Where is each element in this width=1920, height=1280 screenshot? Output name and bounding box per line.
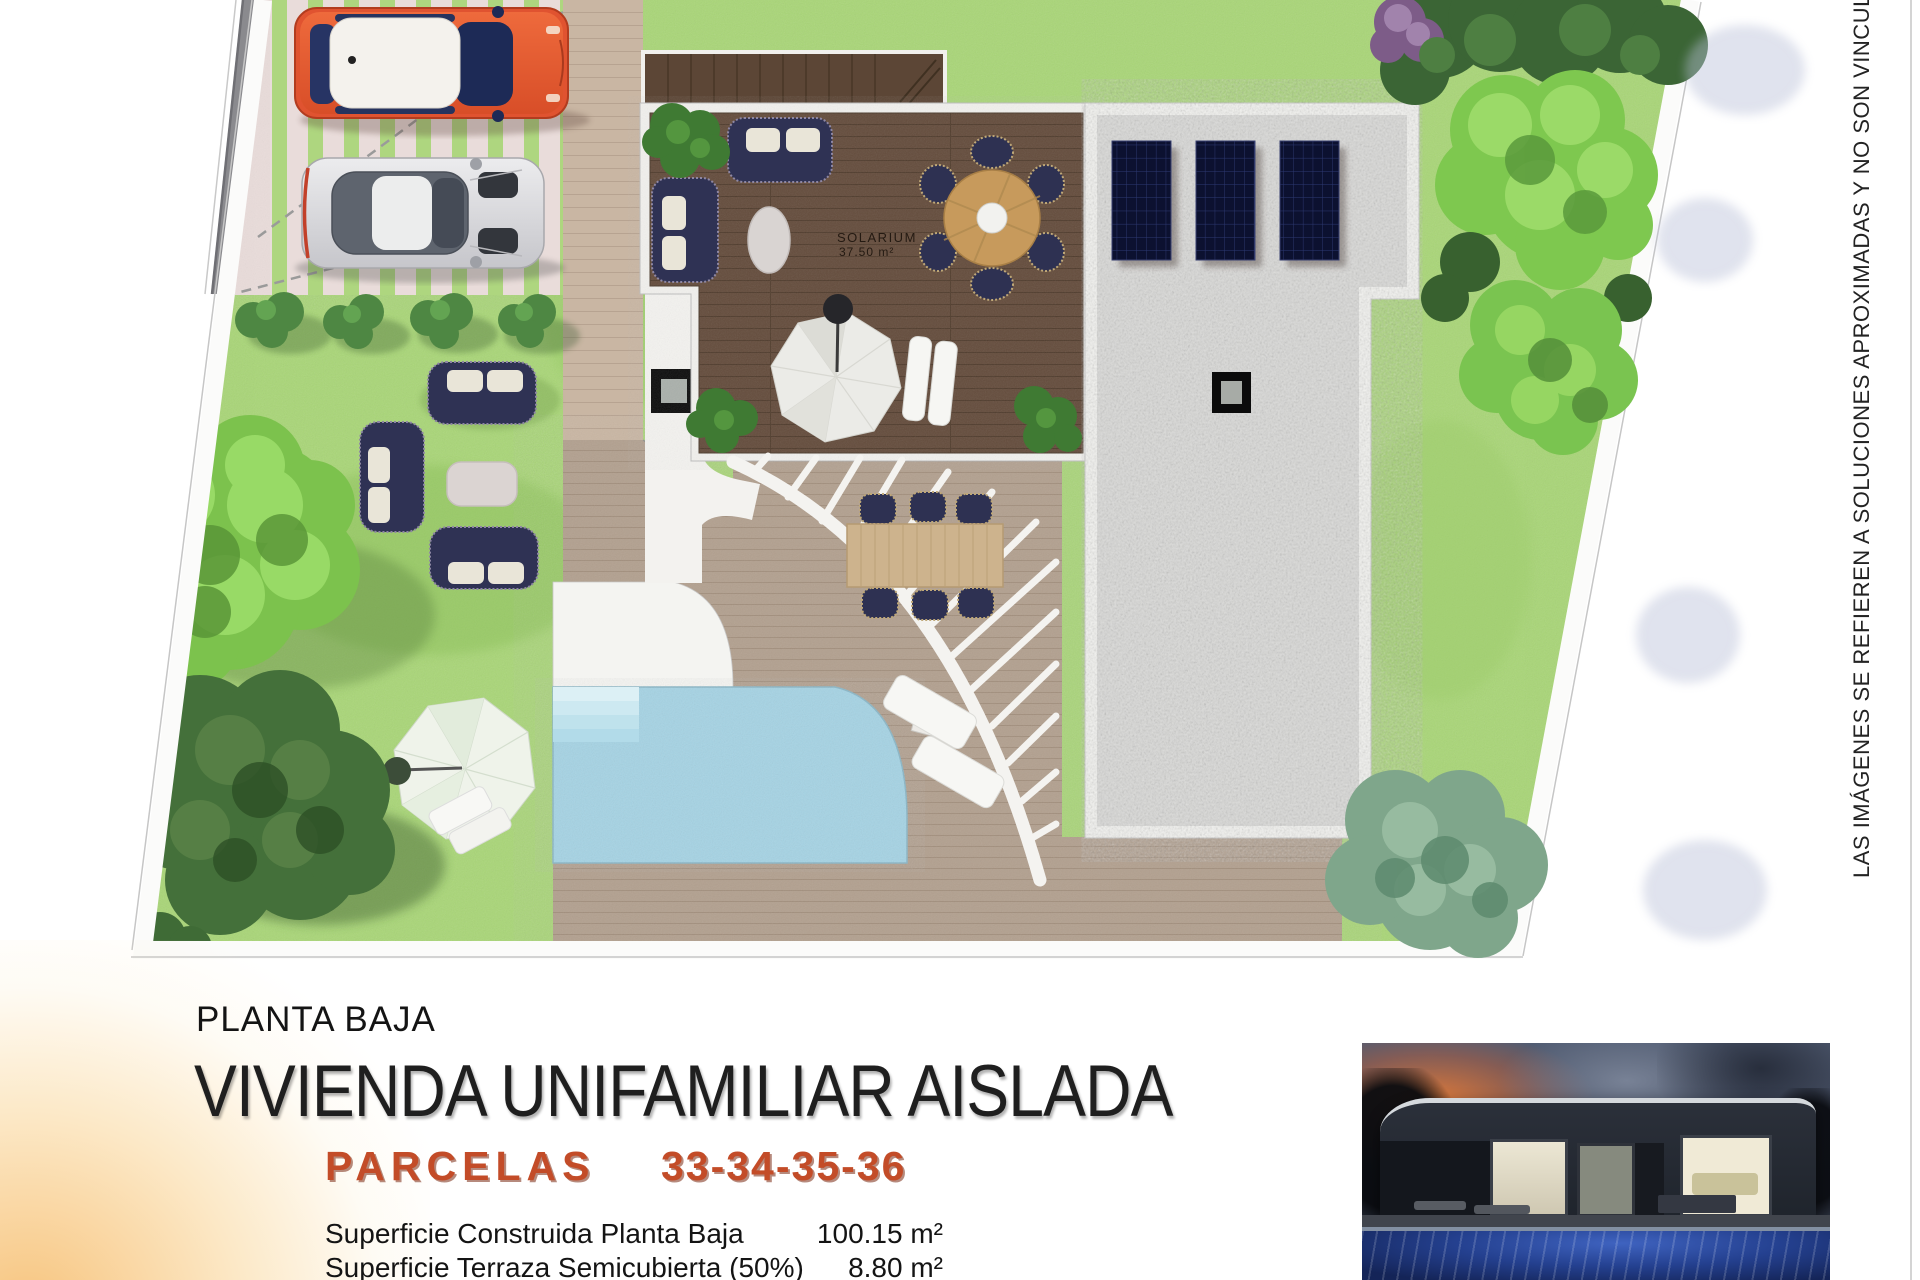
car-orange [295, 6, 590, 136]
parcels-label: PARCELAS [325, 1143, 595, 1190]
surface-value: 8.80 m² [848, 1252, 943, 1280]
surface-label: Superficie Construida Planta Baja [325, 1218, 744, 1250]
lounger-silhouette [1474, 1205, 1530, 1214]
page-title: VIVIENDA UNIFAMILIAR AISLADA [194, 1054, 1173, 1131]
garden-table [447, 462, 517, 506]
surface-label: Superficie Terraza Semicubierta (50%) [325, 1252, 804, 1280]
page-border-line [1910, 0, 1912, 1280]
pool [553, 687, 907, 863]
interior-sofa [1692, 1173, 1758, 1195]
solar-panels [1112, 141, 1346, 267]
surface-row: Superficie Terraza Semicubierta (50%) 8.… [325, 1252, 943, 1280]
pool-steps [553, 687, 639, 742]
solar-panel [1280, 141, 1339, 260]
solar-panel [1112, 141, 1171, 260]
lounger-silhouette [1414, 1201, 1466, 1210]
plan-sheet: SOLARIUM 37.50 m² [0, 0, 1920, 1280]
solar-panel [1196, 141, 1255, 260]
floor-label: PLANTA BAJA [196, 1000, 436, 1040]
surface-row: Superficie Construida Planta Baja 100.15… [325, 1218, 943, 1250]
photo-inset [1362, 1043, 1830, 1280]
coffee-table [748, 207, 790, 273]
site-plan: SOLARIUM 37.50 m² [0, 0, 1920, 965]
svg-text:SOLARIUM: SOLARIUM [837, 230, 917, 245]
car-silver [295, 158, 565, 283]
pergola-dining-set [847, 492, 1003, 620]
parcels-numbers: 33-34-35-36 [661, 1143, 906, 1190]
car-windshield [455, 22, 513, 106]
night-pool [1362, 1231, 1830, 1280]
lit-window [1577, 1143, 1635, 1217]
ac-unit [1212, 372, 1251, 413]
disclaimer-text: LAS IMÁGENES SE REFIEREN A SOLUCIONES AP… [1849, 0, 1875, 878]
svg-text:37.50 m²: 37.50 m² [839, 245, 894, 259]
wood-path [563, 0, 643, 460]
dining-silhouette [1658, 1195, 1736, 1213]
surface-value: 100.15 m² [817, 1218, 943, 1250]
